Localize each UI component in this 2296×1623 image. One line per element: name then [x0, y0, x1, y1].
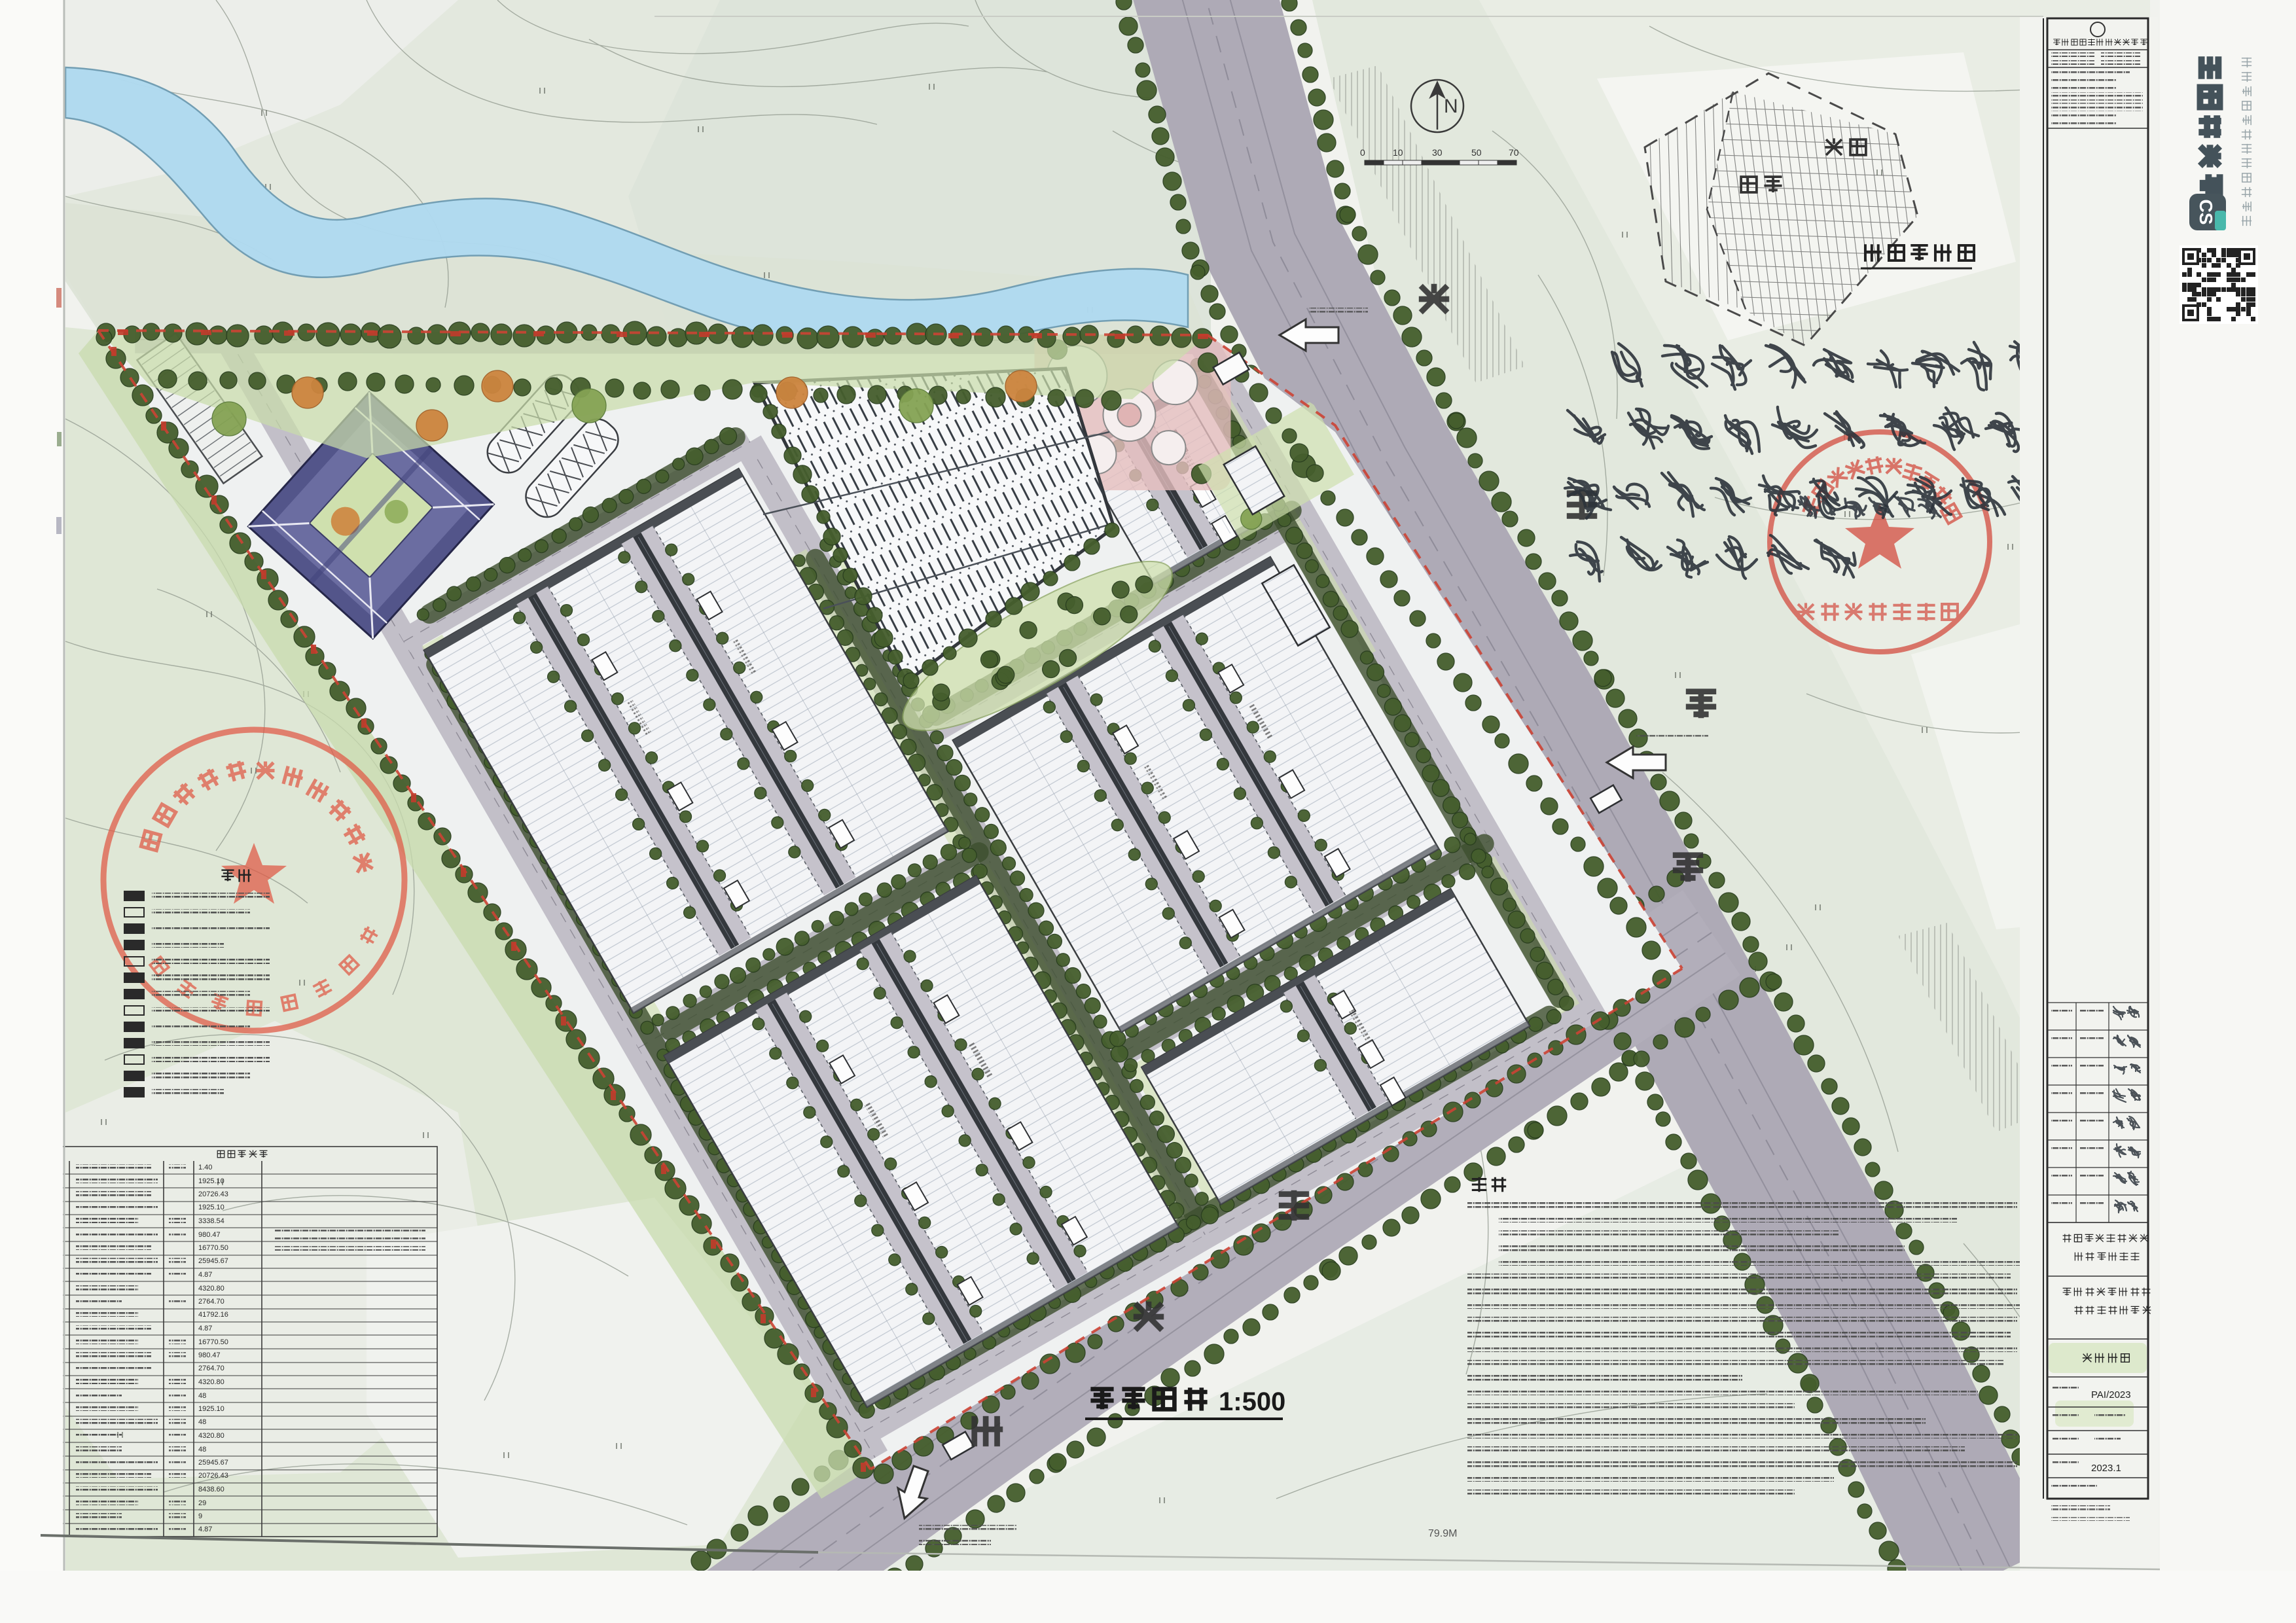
svg-text:25945.67: 25945.67 [198, 1257, 228, 1265]
svg-text:48: 48 [198, 1446, 206, 1454]
svg-text:CS: CS [2196, 200, 2216, 225]
svg-text:20726.43: 20726.43 [198, 1472, 228, 1480]
svg-text:29: 29 [198, 1499, 206, 1507]
svg-text:980.47: 980.47 [198, 1351, 221, 1359]
svg-text:2023.1: 2023.1 [2091, 1463, 2121, 1474]
svg-text:16770.50: 16770.50 [198, 1244, 228, 1252]
svg-text:PAI/2023: PAI/2023 [2091, 1389, 2131, 1400]
svg-text:16770.50: 16770.50 [198, 1338, 228, 1346]
svg-text:79.9M: 79.9M [1428, 1528, 1457, 1539]
svg-text:41792.16: 41792.16 [198, 1311, 228, 1319]
svg-text:70: 70 [1509, 147, 1519, 158]
svg-text:4.87: 4.87 [198, 1525, 212, 1533]
svg-text:1.40: 1.40 [198, 1164, 212, 1171]
svg-text:48: 48 [198, 1418, 206, 1426]
svg-text:4320.80: 4320.80 [198, 1432, 224, 1440]
svg-text:980.47: 980.47 [198, 1231, 221, 1239]
svg-text:0: 0 [1360, 147, 1365, 158]
svg-text:9: 9 [198, 1512, 202, 1520]
svg-text:N: N [1444, 96, 1458, 117]
svg-text:3338.54: 3338.54 [198, 1217, 224, 1225]
svg-text:8438.60: 8438.60 [198, 1486, 224, 1493]
svg-text:30: 30 [1432, 147, 1443, 158]
svg-text:25945.67: 25945.67 [198, 1459, 228, 1467]
svg-text:1925.10: 1925.10 [198, 1204, 224, 1211]
svg-text:4.87: 4.87 [198, 1271, 212, 1279]
svg-text:1925.10: 1925.10 [198, 1177, 224, 1185]
svg-text:4320.80: 4320.80 [198, 1285, 224, 1293]
svg-text:1:500: 1:500 [1219, 1387, 1285, 1416]
svg-text:4.87: 4.87 [198, 1325, 212, 1332]
svg-text:4320.80: 4320.80 [198, 1378, 224, 1386]
svg-text:10: 10 [1393, 147, 1403, 158]
svg-text:2764.70: 2764.70 [198, 1364, 224, 1372]
svg-text:20726.43: 20726.43 [198, 1190, 228, 1198]
svg-text:48: 48 [198, 1392, 206, 1400]
svg-text:2764.70: 2764.70 [198, 1298, 224, 1306]
svg-text:50: 50 [1471, 147, 1482, 158]
svg-text:1925.10: 1925.10 [198, 1405, 224, 1413]
